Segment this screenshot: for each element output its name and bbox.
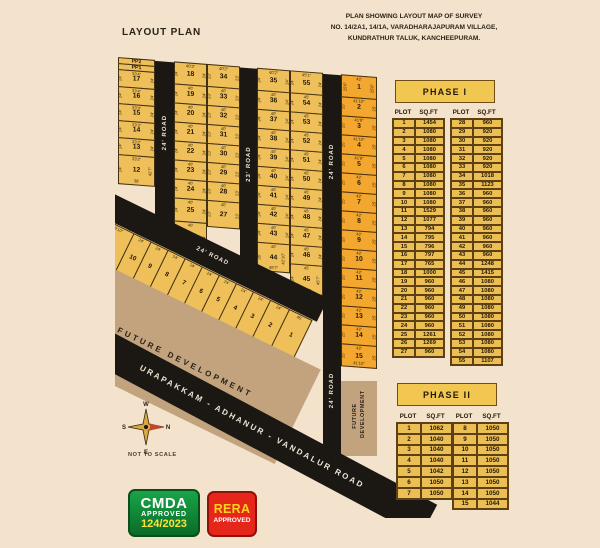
table-header-sqft: SQ.FT xyxy=(414,109,443,116)
sqft-cell: 960 xyxy=(415,313,444,322)
plot-depth-label-left: 25' xyxy=(342,123,346,129)
sqft-cell: 1415 xyxy=(473,269,502,278)
table-row: 22960 xyxy=(393,304,444,313)
plot-no-cell: 32 xyxy=(451,154,473,163)
sqft-cell: 1080 xyxy=(473,321,502,330)
table-row: 29920 xyxy=(451,128,502,137)
plot-depth-label-right: 25' xyxy=(372,144,376,150)
sqft-cell: 1050 xyxy=(477,477,508,488)
table-row: 111529 xyxy=(393,207,444,216)
plot-depth-label-right: 24' xyxy=(150,146,154,152)
rera-approved-text: APPROVED xyxy=(213,518,250,525)
plot-depth-label-left: 25' xyxy=(342,237,346,243)
table-row: 131050 xyxy=(453,477,508,488)
phase2-table-right: 8105091050101050111050121050131050141050… xyxy=(452,422,509,510)
table-row: 121077 xyxy=(393,216,444,225)
plot-depth-label-left: 24' xyxy=(258,77,262,83)
plot-no-cell: 8 xyxy=(393,181,415,190)
plot-no-cell: 7 xyxy=(397,488,421,499)
table-row: 251261 xyxy=(393,330,444,339)
table-row: 17765 xyxy=(393,260,444,269)
plot-no-cell: 46 xyxy=(451,277,473,286)
plot-depth-label-right: 25' xyxy=(372,354,376,360)
sqft-cell: 1080 xyxy=(415,181,444,190)
plot-no-cell: 9 xyxy=(393,189,415,198)
plot-no-cell: 23 xyxy=(393,313,415,322)
plot-no-cell: 12 xyxy=(393,216,415,225)
future-development-zone-right: FUTURE DEVELOPMENT xyxy=(341,381,377,456)
plot-no-cell: 1 xyxy=(393,119,415,128)
plot-no-cell: 11 xyxy=(393,207,415,216)
plot-depth-label-left: 25' xyxy=(342,313,346,319)
table-row: 31920 xyxy=(451,145,502,154)
plot-no-cell: 42 xyxy=(451,242,473,251)
table-row: 441248 xyxy=(451,260,502,269)
plot-no-cell: 38 xyxy=(451,207,473,216)
table-row: 24960 xyxy=(393,321,444,330)
compass-south-label: S xyxy=(122,425,126,431)
plot-depth-label-left: 24' xyxy=(291,176,295,182)
plot-depth-label-left: 24' xyxy=(119,75,123,81)
table-row: 81080 xyxy=(393,181,444,190)
plot-depth-label-left: 25' xyxy=(342,199,346,205)
plot-depth-label-right: 24' xyxy=(150,129,154,135)
plot-depth-label-left: 24' xyxy=(119,143,123,149)
plot-depth-label-left: 23' xyxy=(208,188,212,194)
road-23ft: 23' ROAD xyxy=(240,67,257,268)
table-row: 121050 xyxy=(453,466,508,477)
plot-depth-label-right: 23' xyxy=(235,95,239,101)
table-row: 42960 xyxy=(451,242,502,251)
plot-depth-label-right: 24' xyxy=(318,102,322,108)
plot-depth-label-left: 24' xyxy=(291,252,295,258)
plot-no-cell: 50 xyxy=(451,313,473,322)
sqft-cell: 796 xyxy=(415,242,444,251)
plot-depth-label-left: 24' xyxy=(291,79,295,85)
sqft-cell: 1000 xyxy=(415,269,444,278)
table-row: 61050 xyxy=(397,477,452,488)
rera-approved-badge: RERA APPROVED xyxy=(207,491,257,537)
table-row: 101080 xyxy=(393,198,444,207)
plot-width-label: 40' xyxy=(258,243,289,250)
sqft-cell: 960 xyxy=(415,348,444,357)
plot-depth-label-left: 25' xyxy=(342,332,346,338)
plot-no-cell: 53 xyxy=(451,339,473,348)
plot-no-cell: 47 xyxy=(451,286,473,295)
table-row: 21960 xyxy=(393,295,444,304)
plot-no-cell: 40 xyxy=(451,225,473,234)
plot-no-cell: 13 xyxy=(453,477,477,488)
future-development-right-label: FUTURE DEVELOPMENT xyxy=(351,394,367,438)
sqft-cell: 1018 xyxy=(473,172,502,181)
sqft-cell: 794 xyxy=(415,225,444,234)
plot-depth-label-right: 24' xyxy=(318,140,322,146)
sqft-cell: 1080 xyxy=(473,277,502,286)
layout-plan-page: LAYOUT PLAN PLAN SHOWING LAYOUT MAP OF S… xyxy=(0,0,600,548)
table-header-sqft: SQ.FT xyxy=(420,413,451,420)
sqft-cell: 1050 xyxy=(421,477,452,488)
rera-name: RERA xyxy=(214,503,251,516)
plot-depth-label-right: 23' xyxy=(235,152,239,158)
plot-no-cell: 25 xyxy=(393,330,415,339)
plot-no-cell: 51 xyxy=(451,321,473,330)
plot-no-cell: 3 xyxy=(393,137,415,146)
sqft-cell: 920 xyxy=(473,163,502,172)
table-row: 41040 xyxy=(397,455,452,466)
sqft-cell: 920 xyxy=(473,145,502,154)
table-header-sqft: SQ.FT xyxy=(476,413,507,420)
plot-depth-label-left: 24' xyxy=(258,211,262,217)
plot-bottom-label: 41'10" xyxy=(342,361,376,368)
plot-depth-label-left: 25' xyxy=(342,352,346,358)
plot-no-cell: 5 xyxy=(397,466,421,477)
layout-map: PP2PP133'4"1724'24'33'4"1624'24'33'3"152… xyxy=(0,0,600,548)
sqft-cell: 960 xyxy=(415,286,444,295)
compass-west-label: W xyxy=(143,402,149,408)
plot-depth-label-left: 24' xyxy=(119,109,123,115)
plot-no-cell: 33 xyxy=(451,163,473,172)
plot-no-cell: 4 xyxy=(393,145,415,154)
plot-no-cell: 17 xyxy=(393,260,415,269)
table-row: 261269 xyxy=(393,339,444,348)
sqft-cell: 960 xyxy=(473,198,502,207)
plot-no-cell: 10 xyxy=(393,198,415,207)
plot-depth-label-left: 25' xyxy=(342,142,346,148)
plot-depth-label-left: 23' xyxy=(208,150,212,156)
plot-depth-label-left: 24' xyxy=(175,91,179,97)
sqft-cell: 960 xyxy=(473,233,502,242)
plot-depth-label-right: 24' xyxy=(150,78,154,84)
plot-phase2-15: 42'1525'25'41'10" xyxy=(341,343,377,369)
table-row: 551107 xyxy=(451,357,502,366)
plot-no-cell: 27 xyxy=(393,348,415,357)
sqft-cell: 1080 xyxy=(415,198,444,207)
sqft-cell: 1080 xyxy=(415,145,444,154)
plot-width-label: 40'2" xyxy=(258,69,289,76)
plot-no-cell: 49 xyxy=(451,304,473,313)
plot-depth-label-right: 23' xyxy=(235,114,239,120)
plot-depth-label-left: 24' xyxy=(291,119,295,125)
plot-depth-label-left: 25' xyxy=(342,256,346,262)
road-label: 23' ROAD xyxy=(246,146,252,182)
table-header-plot: PLOT xyxy=(452,413,476,420)
table-row: 341018 xyxy=(451,172,502,181)
plot-no-cell: 24 xyxy=(393,321,415,330)
sqft-cell: 960 xyxy=(415,304,444,313)
phase2-table-left-headers: PLOTSQ.FT xyxy=(396,413,451,420)
sqft-cell: 1248 xyxy=(473,260,502,269)
table-row: 13794 xyxy=(393,225,444,234)
sqft-cell: 960 xyxy=(415,321,444,330)
table-row: 28960 xyxy=(451,119,502,128)
plot-depth-label-left: 24' xyxy=(175,148,179,154)
plot-number: 11 xyxy=(93,237,125,257)
col-c: 40'2"3423'23'40'3323'23'40'3223'23'40'31… xyxy=(207,65,240,230)
plot-depth-label-left: 24' xyxy=(175,186,179,192)
plot-depth-label-left: 24' xyxy=(258,192,262,198)
sqft-cell: 960 xyxy=(473,119,502,128)
phase2-header: PHASE II xyxy=(397,383,497,406)
phase2-table-right-headers: PLOTSQ.FT xyxy=(452,413,507,420)
sqft-cell: 1080 xyxy=(415,128,444,137)
plot-depth-label-left: 24' xyxy=(258,230,262,236)
plot-depth-label-right: 24' xyxy=(318,159,322,165)
sqft-cell: 1080 xyxy=(473,348,502,357)
plot-no-cell: 55 xyxy=(451,357,473,366)
sqft-cell: 1050 xyxy=(477,423,508,434)
plot-depth-label-right: 25'6" xyxy=(370,83,374,93)
survey-note-line1: PLAN SHOWING LAYOUT MAP OF SURVEY xyxy=(326,12,502,23)
road-24ft-left: 24' ROAD xyxy=(155,61,174,232)
plot-no-cell: 14 xyxy=(393,233,415,242)
sqft-cell: 1080 xyxy=(473,330,502,339)
table-row: 471080 xyxy=(451,286,502,295)
plot-no-cell: 16 xyxy=(393,251,415,260)
plot-phase1-12: 33'2"1224'42'7"38' xyxy=(118,154,155,187)
table-row: 101050 xyxy=(453,445,508,456)
col-f: 42'125'6"25'6"41'10"225'25'41'9"325'25'4… xyxy=(341,75,377,369)
col-d: 40'2"3524'24'40'3624'24'40'3724'24'40'38… xyxy=(257,69,290,274)
plot-depth-label-right: 24' xyxy=(318,81,322,87)
plot-no-cell: 54 xyxy=(451,348,473,357)
plot-no-cell: 45 xyxy=(451,269,473,278)
road-label: 24' ROAD xyxy=(162,115,168,151)
table-row: 37960 xyxy=(451,198,502,207)
sqft-cell: 1080 xyxy=(415,163,444,172)
plot-no-cell: 6 xyxy=(393,163,415,172)
table-row: 111050 xyxy=(453,455,508,466)
table-row: 11454 xyxy=(393,119,444,128)
phase1-table-left: 1145421080310804108051080610807108081080… xyxy=(392,118,445,358)
plot-no-cell: 20 xyxy=(393,286,415,295)
sqft-cell: 1062 xyxy=(421,423,452,434)
table-row: 21040 xyxy=(397,434,452,445)
plot-no-cell: 19 xyxy=(393,277,415,286)
table-row: 20960 xyxy=(393,286,444,295)
plot-no-cell: 7 xyxy=(393,172,415,181)
sqft-cell: 920 xyxy=(473,128,502,137)
table-row: 16797 xyxy=(393,251,444,260)
table-row: 351123 xyxy=(451,181,502,190)
plot-depth-label-left: 23' xyxy=(208,73,212,79)
compass-rose: W S N E xyxy=(120,399,172,457)
plot-no-cell: 41 xyxy=(451,233,473,242)
plot-depth-label-left: 24' xyxy=(175,129,179,135)
table-row: 181000 xyxy=(393,269,444,278)
plot-depth-label-right: 23' xyxy=(235,213,239,219)
table-header-plot: PLOT xyxy=(392,109,414,116)
plot-depth-label-left: 24' xyxy=(258,116,262,122)
table-row: 451415 xyxy=(451,269,502,278)
sqft-cell: 1050 xyxy=(421,488,452,499)
table-row: 31040 xyxy=(397,445,452,456)
sqft-cell: 1123 xyxy=(473,181,502,190)
table-row: 521080 xyxy=(451,330,502,339)
sqft-cell: 1040 xyxy=(421,445,452,456)
page-title: LAYOUT PLAN xyxy=(122,27,201,38)
table-row: 461080 xyxy=(451,277,502,286)
plot-phase1-27: 40'2723'23' xyxy=(207,200,240,230)
plot-no-cell: 18 xyxy=(393,269,415,278)
plot-depth-label-left: 25' xyxy=(342,161,346,167)
sqft-cell: 1080 xyxy=(415,137,444,146)
plot-no-cell: 4 xyxy=(397,455,421,466)
table-row: 51042 xyxy=(397,466,452,477)
plot-no-cell: 5 xyxy=(393,154,415,163)
sqft-cell: 1107 xyxy=(473,357,502,366)
plot-depth-label-right: 24' xyxy=(318,197,322,203)
table-row: 30920 xyxy=(451,137,502,146)
plot-depth-label-right: 24' xyxy=(318,235,322,241)
plot-depth-label-left: 24' xyxy=(291,157,295,163)
sqft-cell: 1080 xyxy=(473,339,502,348)
cmda-approved-badge: CMDA APPROVED 124/2023 xyxy=(128,489,200,537)
plot-depth-label-right: 25' xyxy=(372,334,376,340)
survey-note-line3: KUNDRATHUR TALUK, KANCHEEPURAM. xyxy=(326,34,502,45)
table-row: 61080 xyxy=(393,163,444,172)
sqft-cell: 765 xyxy=(415,260,444,269)
plot-depth-label-left: 24' xyxy=(291,100,295,106)
plot-depth-label-right: 25' xyxy=(372,182,376,188)
plot-depth-label-left: 24' xyxy=(291,138,295,144)
col-a: PP2PP133'4"1724'24'33'4"1624'24'33'3"152… xyxy=(118,58,155,187)
table-row: 481080 xyxy=(451,295,502,304)
phase1-table-right: 2896029920309203192032920339203410183511… xyxy=(450,118,503,366)
plot-depth-label-right: 25' xyxy=(372,220,376,226)
plot-width-label: 40'3" xyxy=(175,63,206,70)
plot-depth-label-left: 24' xyxy=(119,166,123,172)
compass-north-label: N xyxy=(166,425,170,431)
plot-depth-label-left: 31'9" xyxy=(95,234,103,244)
sqft-cell: 1080 xyxy=(415,154,444,163)
sqft-cell: 1269 xyxy=(415,339,444,348)
table-row: 31080 xyxy=(393,137,444,146)
sqft-cell: 1042 xyxy=(421,466,452,477)
plot-no-cell: 39 xyxy=(451,216,473,225)
plot-no-cell: 2 xyxy=(397,434,421,445)
plot-depth-label-left: 24' xyxy=(119,92,123,98)
plot-depth-label-right: 24' xyxy=(318,254,322,260)
sqft-cell: 960 xyxy=(473,225,502,234)
plot-no-cell: 34 xyxy=(451,172,473,181)
plot-depth-label-right: 25' xyxy=(372,106,376,112)
plot-depth-label-right: 23' xyxy=(235,75,239,81)
plot-width-label: 40' xyxy=(175,199,206,206)
plot-depth-label-left: 24' xyxy=(175,70,179,76)
sqft-cell: 1080 xyxy=(473,304,502,313)
table-row: 51080 xyxy=(393,154,444,163)
plot-no-cell: 8 xyxy=(453,423,477,434)
sqft-cell: 1050 xyxy=(477,488,508,499)
table-row: 71050 xyxy=(397,488,452,499)
table-row: 491080 xyxy=(451,304,502,313)
plot-no-cell: 48 xyxy=(451,295,473,304)
plot-no-cell: 11 xyxy=(453,455,477,466)
plot-number: 1 xyxy=(279,327,304,344)
diagonal-24ft-road-label: 24' ROAD xyxy=(195,246,229,267)
sqft-cell: 1040 xyxy=(421,434,452,445)
table-row: 27960 xyxy=(393,348,444,357)
plot-depth-label-left: 23' xyxy=(208,211,212,217)
table-row: 36960 xyxy=(451,189,502,198)
table-row: 43960 xyxy=(451,251,502,260)
plot-depth-label-left: 24' xyxy=(175,207,179,213)
plot-no-cell: 3 xyxy=(397,445,421,456)
plot-depth-label-right: 25' xyxy=(372,163,376,169)
plot-depth-label-right: 24' xyxy=(150,112,154,118)
plot-depth-label-left: 24' xyxy=(291,195,295,201)
survey-note: PLAN SHOWING LAYOUT MAP OF SURVEY NO. 14… xyxy=(326,12,502,45)
sqft-cell: 960 xyxy=(473,242,502,251)
phase1-table-left-headers: PLOTSQ.FT xyxy=(392,109,443,116)
phase1-header: PHASE I xyxy=(395,80,495,103)
plot-no-cell: 37 xyxy=(451,198,473,207)
sqft-cell: 1261 xyxy=(415,330,444,339)
plot-no-cell: 22 xyxy=(393,304,415,313)
sqft-cell: 1080 xyxy=(415,189,444,198)
table-row: 41960 xyxy=(451,233,502,242)
not-to-scale-label: NOT TO SCALE xyxy=(128,452,177,458)
plot-depth-label-right: 42'7" xyxy=(148,167,152,177)
plot-width-label: 45' xyxy=(291,265,322,272)
plot-depth-label-right: 24' xyxy=(318,178,322,184)
plot-no-cell: 31 xyxy=(451,145,473,154)
plot-width-label: 45'1" xyxy=(291,72,322,79)
table-row: 21080 xyxy=(393,128,444,137)
sqft-cell: 1077 xyxy=(415,216,444,225)
plot-depth-label-right: 42'10" xyxy=(282,252,286,264)
plot-no-cell: 10 xyxy=(453,445,477,456)
plot-depth-label-left: 24' xyxy=(175,167,179,173)
plot-no-cell: 28 xyxy=(451,119,473,128)
plot-depth-label-right: 23' xyxy=(235,190,239,196)
table-row: 81050 xyxy=(453,423,508,434)
phase2-table-left: 11062210403104041040510426105071050 xyxy=(396,422,453,500)
sqft-cell: 1080 xyxy=(473,313,502,322)
sqft-cell: 960 xyxy=(415,295,444,304)
plot-no-cell: 1 xyxy=(397,423,421,434)
table-row: 541080 xyxy=(451,348,502,357)
table-row: 33920 xyxy=(451,163,502,172)
table-row: 38960 xyxy=(451,207,502,216)
plot-depth-label-left: 25' xyxy=(342,180,346,186)
plot-no-cell: 13 xyxy=(393,225,415,234)
plot-depth-label-right: 24' xyxy=(318,121,322,127)
col-e: 45'1"5524'24'45'5424'24'45'5324'24'45'52… xyxy=(290,71,323,296)
sqft-cell: 960 xyxy=(473,207,502,216)
plot-depth-label-left: 24' xyxy=(258,135,262,141)
sqft-cell: 1529 xyxy=(415,207,444,216)
plot-no-cell: 6 xyxy=(397,477,421,488)
table-row: 32920 xyxy=(451,154,502,163)
sqft-cell: 1050 xyxy=(477,434,508,445)
plot-depth-label-left: 23' xyxy=(208,93,212,99)
plot-depth-label-left: 24' xyxy=(291,233,295,239)
plot-depth-label-right: 45'7" xyxy=(316,276,320,286)
plot-depth-label-right: 25' xyxy=(372,239,376,245)
table-header-plot: PLOT xyxy=(396,413,420,420)
plot-depth-label-left: 25' xyxy=(342,294,346,300)
plot-depth-label-left: 24' xyxy=(258,97,262,103)
plot-bottom-label: 38' xyxy=(119,178,154,185)
plot-depth-label-left: 24' xyxy=(175,110,179,116)
plot-depth-label-left: 25' xyxy=(342,104,346,110)
plot-depth-label-left: 24' xyxy=(258,154,262,160)
road-label: 24' ROAD xyxy=(329,373,335,409)
sqft-cell: 1080 xyxy=(473,295,502,304)
plot-depth-label-right: 25' xyxy=(372,277,376,283)
plot-depth-label-left: 23' xyxy=(208,131,212,137)
